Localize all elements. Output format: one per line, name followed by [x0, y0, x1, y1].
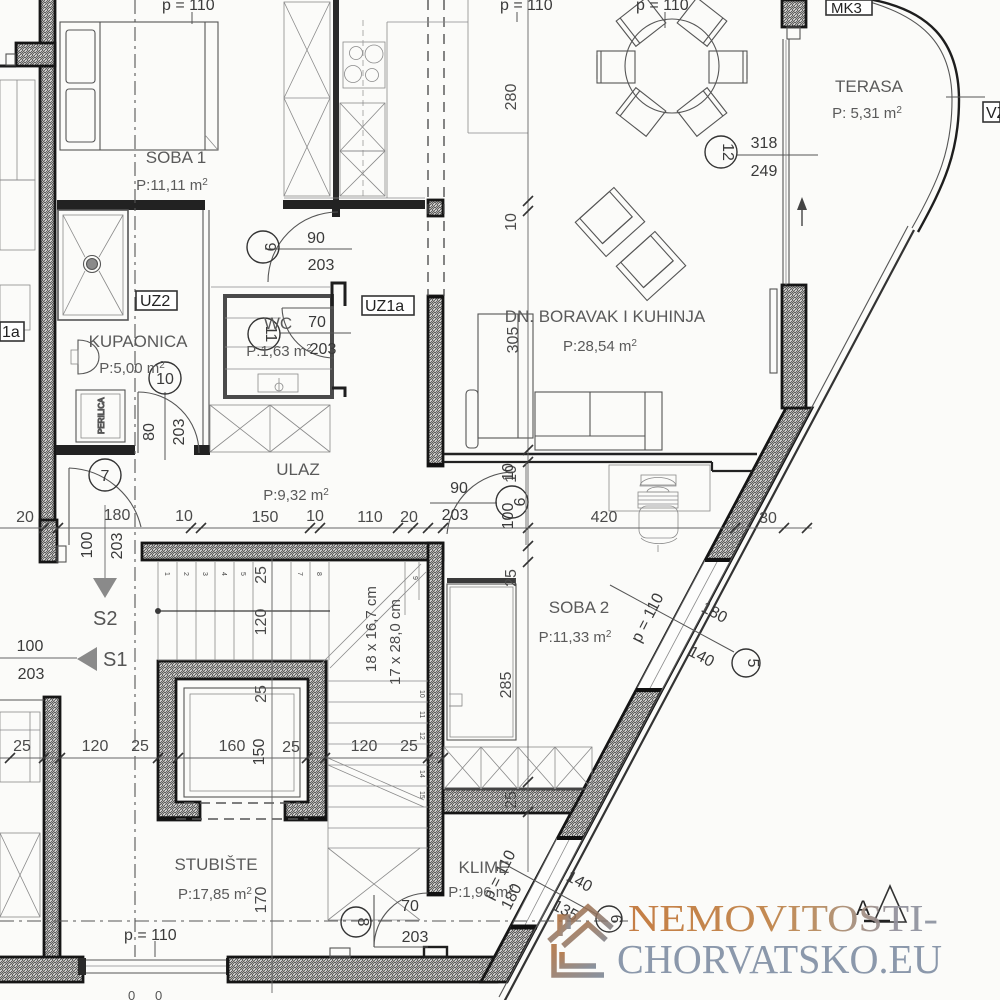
svg-text:120: 120: [253, 609, 270, 636]
svg-text:0: 0: [155, 988, 162, 1000]
svg-text:420: 420: [591, 509, 618, 526]
svg-text:P:5,00 m2: P:5,00 m2: [99, 360, 165, 377]
svg-text:3: 3: [201, 572, 208, 576]
svg-text:SOBA 1: SOBA 1: [146, 148, 206, 167]
svg-text:8: 8: [354, 918, 371, 927]
svg-text:150: 150: [251, 739, 268, 766]
svg-text:203: 203: [442, 507, 469, 524]
svg-text:10: 10: [500, 463, 517, 481]
svg-text:SOBA 2: SOBA 2: [549, 598, 609, 617]
svg-text:P:11,33 m2: P:11,33 m2: [539, 629, 612, 646]
svg-text:NEMOVITOSTI-: NEMOVITOSTI-: [628, 898, 938, 940]
svg-text:70: 70: [401, 898, 419, 915]
svg-text:P:11,11 m2: P:11,11 m2: [136, 177, 208, 194]
svg-text:5: 5: [239, 572, 246, 576]
svg-text:203: 203: [308, 257, 335, 274]
svg-text:120: 120: [82, 738, 109, 755]
svg-text:p = 110: p = 110: [162, 0, 215, 14]
svg-text:WC: WC: [264, 314, 292, 333]
svg-text:TERASA: TERASA: [835, 77, 904, 96]
svg-text:25: 25: [131, 738, 149, 755]
svg-text:25: 25: [400, 738, 418, 755]
svg-text:p = 110: p = 110: [636, 0, 689, 14]
svg-text:25: 25: [13, 738, 31, 755]
svg-text:150: 150: [252, 509, 279, 526]
svg-text:203: 203: [402, 929, 429, 946]
svg-text:10: 10: [418, 690, 425, 698]
svg-text:p = 110: p = 110: [124, 927, 177, 944]
svg-text:1a: 1a: [2, 324, 20, 341]
svg-text:25: 25: [282, 739, 300, 756]
svg-text:100: 100: [17, 638, 44, 655]
svg-text:P:9,32 m2: P:9,32 m2: [263, 487, 329, 504]
svg-text:ULAZ: ULAZ: [276, 460, 319, 479]
svg-text:203: 203: [171, 419, 188, 446]
svg-text:20: 20: [16, 509, 34, 526]
svg-text:7: 7: [101, 468, 110, 485]
svg-text:DN. BORAVAK I KUHINJA: DN. BORAVAK I KUHINJA: [505, 307, 706, 326]
svg-text:170: 170: [253, 887, 270, 914]
svg-text:MK3: MK3: [831, 0, 862, 17]
svg-text:249: 249: [751, 163, 778, 180]
svg-text:10: 10: [306, 508, 324, 525]
svg-text:12: 12: [719, 143, 736, 161]
svg-text:110: 110: [357, 509, 383, 526]
svg-text:305: 305: [505, 327, 522, 354]
svg-text:P:28,54 m2: P:28,54 m2: [563, 338, 637, 355]
svg-text:p = 110: p = 110: [500, 0, 553, 14]
svg-text:203: 203: [310, 341, 337, 358]
svg-text:90: 90: [450, 480, 468, 497]
svg-text:KLIME: KLIME: [458, 858, 509, 877]
svg-text:2: 2: [182, 572, 189, 576]
svg-text:STUBIŠTE: STUBIŠTE: [174, 855, 257, 874]
svg-text:25: 25: [253, 685, 270, 703]
svg-text:11: 11: [418, 711, 425, 718]
svg-text:7: 7: [296, 572, 303, 576]
svg-text:25: 25: [503, 569, 520, 587]
svg-text:10: 10: [175, 508, 193, 525]
svg-text:S2: S2: [93, 608, 117, 630]
svg-text:UZ2: UZ2: [140, 293, 170, 310]
svg-text:318: 318: [751, 135, 778, 152]
svg-text:280: 280: [503, 84, 520, 111]
svg-text:203: 203: [18, 666, 45, 683]
svg-text:12: 12: [418, 732, 425, 740]
svg-text:160: 160: [219, 738, 246, 755]
svg-text:CHORVATSKO.EU: CHORVATSKO.EU: [617, 936, 942, 982]
svg-text:25: 25: [503, 791, 520, 809]
svg-text:9: 9: [261, 243, 278, 252]
svg-text:80: 80: [141, 423, 158, 441]
svg-text:5: 5: [744, 659, 761, 668]
svg-text:VZ: VZ: [986, 105, 1000, 122]
svg-text:P:1,63 m2: P:1,63 m2: [246, 343, 312, 360]
svg-text:70: 70: [308, 314, 326, 331]
svg-text:10: 10: [503, 213, 520, 231]
svg-text:180: 180: [104, 507, 131, 524]
svg-text:100: 100: [79, 532, 96, 559]
svg-text:UZ1a: UZ1a: [365, 298, 404, 315]
svg-text:P:1,96 m2: P:1,96 m2: [448, 884, 514, 901]
svg-text:1: 1: [163, 572, 170, 576]
svg-text:18 x 16,7 cm: 18 x 16,7 cm: [363, 586, 380, 672]
svg-text:30: 30: [759, 510, 777, 527]
svg-text:4: 4: [220, 572, 227, 576]
svg-text:120: 120: [351, 738, 378, 755]
svg-text:100: 100: [500, 503, 517, 530]
svg-text:17 x 28,0 cm: 17 x 28,0 cm: [387, 599, 404, 685]
svg-text:P: 5,31 m2: P: 5,31 m2: [832, 105, 902, 122]
svg-text:25: 25: [253, 566, 270, 584]
svg-text:9: 9: [411, 576, 418, 580]
svg-text:8: 8: [315, 572, 322, 576]
svg-text:90: 90: [307, 230, 325, 247]
svg-text:203: 203: [109, 533, 126, 560]
svg-text:0: 0: [128, 988, 135, 1000]
svg-text:285: 285: [498, 672, 515, 699]
svg-text:14: 14: [418, 770, 425, 778]
svg-text:PERILICA: PERILICA: [97, 397, 106, 434]
svg-text:S1: S1: [103, 649, 127, 671]
svg-text:KUPAONICA: KUPAONICA: [89, 332, 189, 351]
svg-text:P:17,85 m2: P:17,85 m2: [178, 886, 252, 903]
svg-text:15: 15: [418, 791, 425, 799]
svg-text:20: 20: [400, 509, 418, 526]
